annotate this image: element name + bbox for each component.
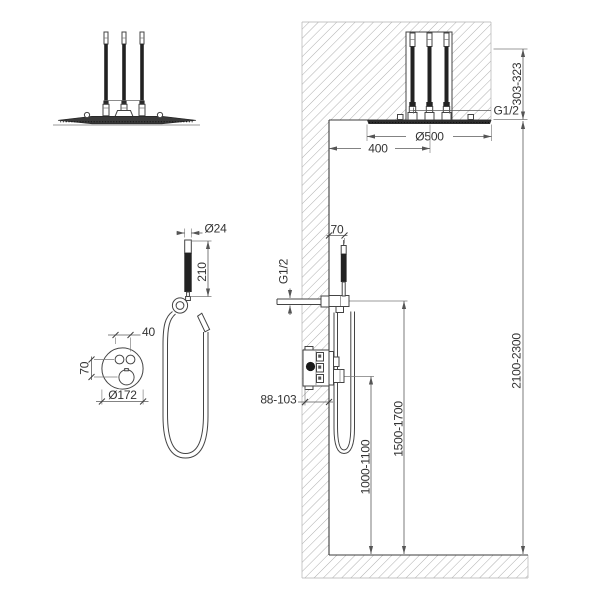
dim-label-valve-recess-depth: 88-103 [260, 393, 297, 407]
dim-label-button-spacing: 40 [142, 325, 155, 339]
dim-label-holder-projection: 70 [331, 223, 344, 237]
dim-label-handle-diameter: Ø24 [205, 222, 228, 236]
dim-label-distance-from-wall: 400 [368, 142, 388, 156]
valve-button-left [115, 355, 124, 364]
holder-ring [172, 298, 187, 313]
plate-slab [367, 120, 492, 124]
dim-label-button-to-knob: 70 [78, 361, 92, 374]
dim-label-ceiling-height: 2100-2300 [510, 333, 524, 389]
dim-label-holder-height: 1500-1700 [392, 401, 406, 457]
knob-notch [125, 369, 129, 371]
installation-drawing: G1/2 Ø500 400 303-323 2100-2300 [0, 0, 600, 600]
dim-label-plate-diameter: Ø172 [108, 388, 137, 402]
center-mount [115, 111, 133, 117]
valve-inlet [306, 362, 315, 371]
valve-trim-plate [329, 352, 334, 386]
hose-nut [336, 307, 344, 313]
shower-holder [329, 296, 349, 307]
dim-label-outlet-connection: G1/2 [277, 258, 291, 284]
handshower-handle-front [184, 240, 191, 301]
valve-button-right [126, 355, 135, 364]
dim-label-mounting-height: 303-323 [510, 62, 524, 105]
valve-knob [119, 370, 134, 385]
dim-label-valve-height: 1000-1100 [359, 439, 373, 494]
dim-label-handle-length: 210 [195, 262, 209, 282]
valve-knob-section [334, 370, 345, 383]
outlet-escutcheon [321, 296, 329, 307]
plate-joint-right [157, 112, 162, 117]
plate-joint-left [84, 112, 89, 117]
